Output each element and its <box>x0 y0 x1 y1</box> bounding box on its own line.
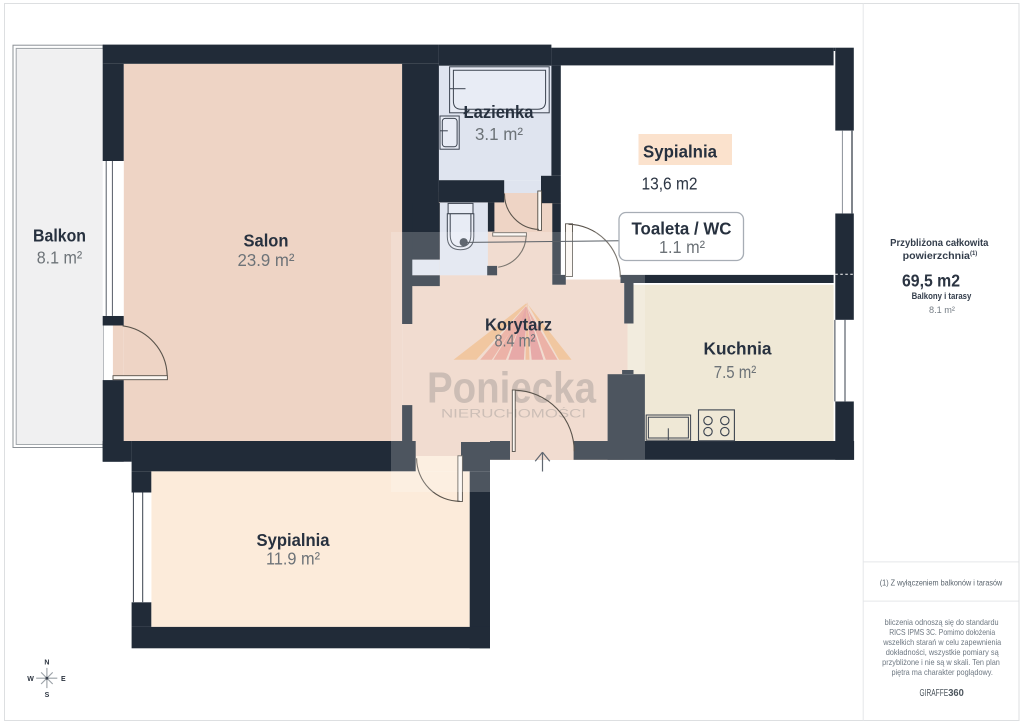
svg-text:1.1 m²: 1.1 m² <box>659 237 705 257</box>
svg-text:piętra ma charakter poglądowy.: piętra ma charakter poglądowy. <box>891 668 993 677</box>
svg-text:Poniecka: Poniecka <box>427 364 596 413</box>
svg-text:Sypialnia: Sypialnia <box>643 142 717 162</box>
svg-text:8.4 m²: 8.4 m² <box>495 331 536 351</box>
svg-text:RICS IPMS 3C. Pomimo dołożenia: RICS IPMS 3C. Pomimo dołożenia <box>889 628 995 637</box>
svg-text:8.1 m²: 8.1 m² <box>929 305 955 316</box>
svg-text:dokładności, wszystkie pomiary: dokładności, wszystkie pomiary są <box>886 648 999 657</box>
svg-text:13,6 m2: 13,6 m2 <box>642 174 698 194</box>
svg-text:Balkon: Balkon <box>33 226 86 246</box>
svg-text:7.5 m²: 7.5 m² <box>714 362 757 382</box>
svg-text:3.1 m²: 3.1 m² <box>475 124 523 144</box>
svg-text:Kuchnia: Kuchnia <box>704 339 772 359</box>
svg-text:Toaleta / WC: Toaleta / WC <box>632 219 732 239</box>
svg-text:Balkony i tarasy: Balkony i tarasy <box>912 291 972 302</box>
svg-text:przybliżone i nie są w skali.: przybliżone i nie są w skali. Ten plan <box>882 658 1000 667</box>
svg-text:powierzchnia(1): powierzchnia(1) <box>903 250 978 262</box>
svg-text:GIRAFFE: GIRAFFE <box>920 687 949 699</box>
svg-text:Łazienka: Łazienka <box>464 102 534 122</box>
svg-text:23.9 m²: 23.9 m² <box>238 250 295 270</box>
svg-text:Przybliżona całkowita: Przybliżona całkowita <box>890 237 988 249</box>
svg-text:69,5 m2: 69,5 m2 <box>902 271 960 291</box>
svg-text:8.1 m²: 8.1 m² <box>37 248 83 268</box>
svg-text:11.9 m²: 11.9 m² <box>266 549 320 569</box>
svg-text:Salon: Salon <box>244 231 289 251</box>
svg-text:N: N <box>44 660 49 667</box>
svg-text:W: W <box>27 676 34 683</box>
svg-text:360: 360 <box>948 687 964 699</box>
svg-text:S: S <box>45 692 50 699</box>
svg-text:(1) Z wyłączeniem balkonów i t: (1) Z wyłączeniem balkonów i tarasów <box>880 578 1003 587</box>
svg-text:bliczenia odnoszą się do stand: bliczenia odnoszą się do standardu <box>885 618 999 627</box>
svg-text:E: E <box>61 676 66 683</box>
svg-text:wszelkich starań w celu zapewn: wszelkich starań w celu zapewnienia <box>882 638 1001 647</box>
svg-text:Sypialnia: Sypialnia <box>257 530 330 550</box>
